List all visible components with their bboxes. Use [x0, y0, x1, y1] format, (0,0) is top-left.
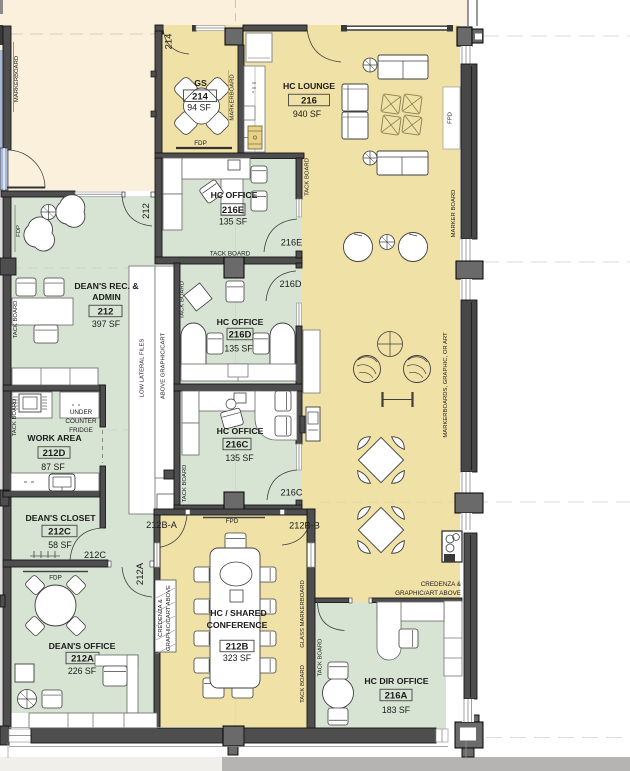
svg-text:226 SF: 226 SF	[68, 666, 97, 676]
svg-text:CREDENZA &: CREDENZA &	[158, 599, 164, 637]
svg-text:TACK BOARD: TACK BOARD	[180, 281, 186, 319]
svg-text:212C: 212C	[84, 550, 106, 560]
svg-text:216A: 216A	[385, 691, 408, 702]
svg-text:216E: 216E	[281, 238, 302, 248]
svg-text:HC OFFICE: HC OFFICE	[211, 190, 258, 200]
svg-text:212A: 212A	[71, 654, 94, 665]
svg-text:HC LOUNGE: HC LOUNGE	[283, 81, 335, 91]
svg-text:212B: 212B	[226, 642, 249, 653]
svg-text:LOW LATERAL FILES: LOW LATERAL FILES	[140, 339, 146, 398]
svg-text:DEAN'S OFFICE: DEAN'S OFFICE	[49, 641, 116, 651]
svg-text:216D: 216D	[280, 279, 302, 289]
svg-text:135 SF: 135 SF	[219, 217, 248, 227]
svg-text:397 SF: 397 SF	[92, 319, 121, 329]
svg-text:216: 216	[301, 96, 317, 107]
svg-text:214: 214	[192, 91, 209, 102]
svg-text:212C: 212C	[48, 527, 71, 538]
svg-text:94 SF: 94 SF	[187, 103, 211, 113]
svg-text:940 SF: 940 SF	[293, 109, 322, 119]
svg-text:216C: 216C	[281, 488, 303, 498]
svg-text:135 SF: 135 SF	[224, 344, 253, 354]
svg-text:MARKERBOARD: MARKERBOARD	[14, 56, 20, 102]
svg-text:TACK BOARD: TACK BOARD	[210, 251, 251, 258]
svg-text:FDP: FDP	[194, 140, 207, 147]
svg-text:FPD: FPD	[448, 112, 454, 124]
svg-text:TACK BOARD: TACK BOARD	[305, 158, 311, 196]
svg-text:MARKERBOARDS, GRAPHIC, OR ART: MARKERBOARDS, GRAPHIC, OR ART	[443, 332, 449, 438]
svg-text:212A: 212A	[135, 562, 146, 585]
svg-text:TACK BOARD: TACK BOARD	[12, 399, 18, 437]
svg-text:212: 212	[98, 307, 114, 318]
svg-text:MARKERBOARD: MARKERBOARD	[230, 74, 236, 120]
svg-text:TACK BOARD: TACK BOARD	[300, 665, 306, 703]
svg-text:DEAN'S CLOSET: DEAN'S CLOSET	[25, 513, 96, 523]
svg-text:COUNTER: COUNTER	[65, 418, 97, 425]
svg-text:214: 214	[164, 34, 175, 50]
svg-text:216E: 216E	[222, 205, 244, 216]
svg-text:135 SF: 135 SF	[225, 453, 254, 463]
svg-text:212: 212	[141, 203, 152, 219]
svg-text:216C: 216C	[226, 440, 249, 451]
svg-text:HC OFFICE: HC OFFICE	[217, 426, 264, 436]
svg-text:HC DIR OFFICE: HC DIR OFFICE	[364, 676, 428, 686]
svg-text:MARKER BOARD: MARKER BOARD	[451, 190, 457, 238]
svg-text:DEAN'S REC. &: DEAN'S REC. &	[74, 281, 138, 291]
svg-text:212D: 212D	[43, 448, 66, 459]
svg-text:ADMIN: ADMIN	[92, 292, 120, 302]
svg-text:GRAPHIC/CART ABOVE: GRAPHIC/CART ABOVE	[166, 585, 172, 651]
svg-text:GRAPHIC/ART ABOVE: GRAPHIC/ART ABOVE	[395, 590, 461, 597]
svg-text:CREDENZA &: CREDENZA &	[421, 581, 462, 588]
svg-text:GS: GS	[194, 78, 207, 88]
svg-text:CONFERENCE: CONFERENCE	[207, 620, 268, 630]
svg-text:TACK BOARD: TACK BOARD	[318, 639, 324, 677]
svg-text:TACK BOARD: TACK BOARD	[182, 465, 188, 503]
svg-text:212B-B: 212B-B	[289, 521, 320, 531]
svg-text:TACK BOARD: TACK BOARD	[13, 301, 19, 339]
svg-text:323 SF: 323 SF	[223, 653, 252, 663]
svg-text:HC OFFICE: HC OFFICE	[217, 317, 264, 327]
svg-text:FDP: FDP	[49, 575, 62, 582]
svg-text:212B-A: 212B-A	[146, 520, 178, 530]
svg-text:58 SF: 58 SF	[48, 540, 72, 550]
svg-text:87 SF: 87 SF	[41, 462, 65, 472]
svg-text:ABOVE GRAPHIC/CART: ABOVE GRAPHIC/CART	[161, 332, 167, 399]
svg-text:FPD: FPD	[226, 518, 239, 525]
svg-text:216D: 216D	[229, 330, 252, 341]
svg-text:UNDER: UNDER	[70, 409, 93, 416]
svg-text:GLASS MARKERBOARD: GLASS MARKERBOARD	[300, 580, 306, 647]
svg-text:FDP: FDP	[16, 225, 22, 237]
svg-text:183 SF: 183 SF	[382, 705, 411, 715]
svg-text:HC / SHARED: HC / SHARED	[210, 608, 266, 618]
svg-text:WORK AREA: WORK AREA	[27, 433, 82, 443]
